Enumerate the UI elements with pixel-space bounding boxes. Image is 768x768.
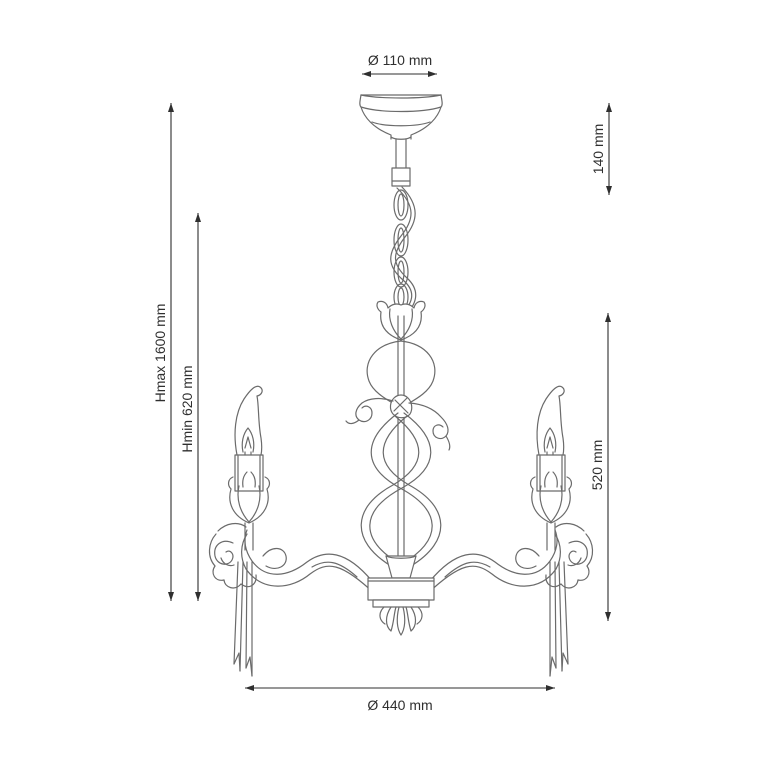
ribbon-streamer-edge bbox=[559, 562, 562, 671]
bulb-filament-zigzag bbox=[245, 437, 251, 448]
canopy-band-line bbox=[372, 122, 430, 126]
bottom-hub bbox=[368, 578, 434, 635]
dim-label-body-height: 520 mm bbox=[589, 440, 605, 491]
chandelier-drawing bbox=[209, 95, 592, 676]
flame-bulb-outline bbox=[235, 386, 262, 455]
dim-canopy-diameter: Ø 110 mm bbox=[362, 52, 437, 77]
left-rose-ornament bbox=[209, 524, 256, 676]
column-collar bbox=[386, 556, 416, 578]
rose-petal-arc bbox=[213, 566, 224, 580]
rose-swirl bbox=[215, 541, 233, 564]
right-candle bbox=[531, 386, 572, 550]
ribbon-streamer-edge bbox=[246, 562, 247, 668]
bulb-filament-outline bbox=[544, 428, 556, 452]
dim-label-body-diameter: Ø 440 mm bbox=[367, 697, 432, 713]
arrowhead-left bbox=[245, 685, 254, 691]
candle-cup-petal-tip bbox=[243, 472, 247, 487]
dim-label-canopy-diameter: Ø 110 mm bbox=[368, 52, 432, 68]
finial-curl bbox=[417, 607, 422, 624]
left-arm-loop bbox=[263, 548, 286, 568]
chain-link-inner bbox=[398, 288, 404, 306]
rose-petal-arc bbox=[561, 580, 578, 588]
bulb-filament-outline bbox=[242, 428, 254, 452]
right-arm-loop bbox=[516, 548, 539, 568]
finial-curl bbox=[380, 607, 385, 624]
ribbon-end-left bbox=[356, 399, 393, 422]
dimension-annotations: Ø 110 mm 140 mm Hmax 1600 mm Hmin 620 mm… bbox=[152, 52, 612, 713]
ribbon-streamer-fork bbox=[550, 657, 556, 676]
hub-bottom-rim bbox=[373, 600, 429, 607]
canopy-underrim-line bbox=[361, 107, 441, 112]
arrowhead-down bbox=[195, 592, 201, 601]
rose-swirl bbox=[569, 541, 587, 564]
left-arm-accent-line bbox=[312, 562, 357, 577]
candle-cup-petal-tip bbox=[229, 477, 233, 489]
twist-ribbon-edge bbox=[361, 416, 419, 566]
ribbon-end-right bbox=[409, 403, 448, 438]
arrowhead-down bbox=[606, 186, 612, 195]
twist-ribbon-edge bbox=[370, 413, 431, 564]
rose-leaf bbox=[556, 524, 584, 531]
arrowhead-left bbox=[362, 71, 371, 77]
ribbon-streamer-edge bbox=[234, 562, 238, 664]
candle-cup-outline bbox=[230, 489, 268, 523]
flame-bulb-outline bbox=[537, 386, 564, 455]
arrowhead-right bbox=[428, 71, 437, 77]
candle-cup-petal-tip bbox=[567, 477, 571, 489]
stem-connector-block bbox=[392, 168, 410, 186]
ribbon-streamer-edge bbox=[564, 562, 568, 664]
ceiling-canopy bbox=[360, 95, 442, 139]
ribbon-end-left-tail bbox=[346, 420, 359, 424]
dim-label-max-height: Hmax 1600 mm bbox=[152, 304, 168, 403]
ribbon-streamer-fork bbox=[246, 657, 252, 676]
chain-link-inner bbox=[398, 194, 404, 216]
arrowhead-up bbox=[605, 313, 611, 322]
rose-petal-arc bbox=[241, 575, 256, 587]
right-arm bbox=[427, 530, 560, 594]
canopy-right-profile bbox=[411, 95, 442, 139]
arrowhead-up bbox=[195, 213, 201, 222]
finial-leaf bbox=[397, 607, 404, 635]
candle-cup-petal-tip bbox=[553, 472, 557, 487]
right-rose-ornament bbox=[546, 524, 593, 676]
left-candle bbox=[229, 386, 270, 550]
arrowhead-down bbox=[168, 592, 174, 601]
canopy-neck-line bbox=[391, 137, 411, 139]
arrowhead-up bbox=[168, 103, 174, 112]
candle-cup-outline bbox=[532, 489, 570, 523]
candle-cup-petal-tip bbox=[531, 477, 535, 489]
bulb-filament-zigzag bbox=[547, 437, 553, 448]
suspension-stem bbox=[392, 139, 410, 186]
ribbon-streamer-edge bbox=[555, 562, 556, 668]
rose-petal-arc bbox=[224, 580, 241, 588]
twist-ribbon-edge bbox=[383, 416, 441, 566]
dim-label-min-height: Hmin 620 mm bbox=[179, 365, 195, 452]
finial-leaf bbox=[387, 607, 397, 631]
dim-suspension-length: 140 mm bbox=[590, 103, 612, 195]
chandelier-dimension-diagram: Ø 110 mm 140 mm Hmax 1600 mm Hmin 620 mm… bbox=[0, 0, 768, 768]
ribbon-streamer-edge bbox=[240, 562, 243, 671]
central-column bbox=[346, 301, 450, 578]
dim-min-height: Hmin 620 mm bbox=[179, 213, 201, 601]
right-arm-accent-line bbox=[445, 562, 490, 577]
left-arm bbox=[242, 530, 375, 594]
technical-drawing-canvas: Ø 110 mm 140 mm Hmax 1600 mm Hmin 620 mm… bbox=[0, 0, 768, 768]
ribbon-end-right-tail bbox=[446, 436, 450, 450]
candle-cup-petal-tip bbox=[265, 477, 269, 489]
tulip-cap bbox=[377, 301, 425, 340]
canopy-left-profile bbox=[360, 95, 391, 139]
rose-petal-arc bbox=[578, 566, 589, 580]
arrowhead-down bbox=[605, 612, 611, 621]
finial-leaf bbox=[406, 607, 416, 631]
arrowhead-up bbox=[606, 103, 612, 112]
arrowhead-right bbox=[546, 685, 555, 691]
candle-cup-petal-tip bbox=[545, 472, 549, 487]
dim-body-height: 520 mm bbox=[589, 313, 611, 621]
dim-body-diameter: Ø 440 mm bbox=[245, 685, 555, 713]
candle-cup-petal-tip bbox=[251, 472, 255, 487]
dim-label-suspension-length: 140 mm bbox=[590, 124, 606, 175]
dim-max-height: Hmax 1600 mm bbox=[152, 103, 174, 601]
rose-petal-arc bbox=[546, 575, 561, 587]
suspension-chain bbox=[391, 187, 416, 317]
rose-leaf bbox=[218, 524, 246, 531]
